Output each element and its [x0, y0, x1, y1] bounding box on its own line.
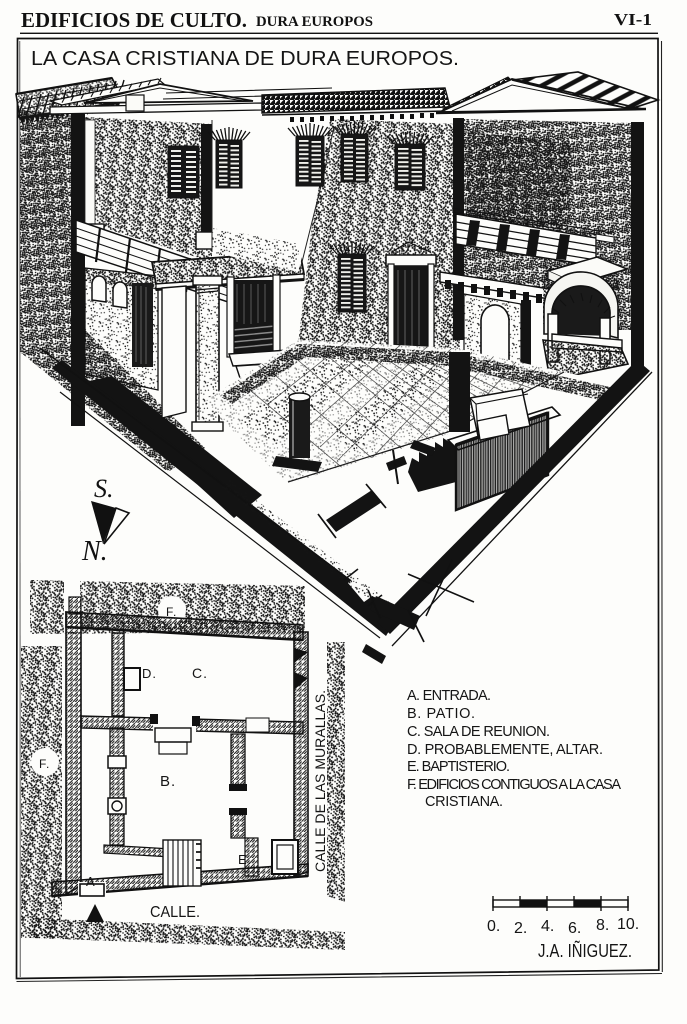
svg-text:8.: 8.: [596, 917, 609, 934]
svg-text:6.: 6.: [568, 920, 581, 937]
svg-text:CALLE.: CALLE.: [150, 904, 200, 921]
svg-text:D.: D.: [142, 666, 157, 681]
svg-text:N.: N.: [81, 536, 108, 567]
svg-text:S.: S.: [94, 474, 114, 503]
svg-text:A. ENTRADA.: A. ENTRADA.: [407, 688, 491, 704]
svg-text:EDIFICIOS DE CULTO.: EDIFICIOS DE CULTO.: [21, 8, 247, 32]
svg-text:B. PATIO.: B. PATIO.: [407, 706, 475, 722]
svg-text:2.: 2.: [514, 920, 527, 937]
svg-text:CRISTIANA.: CRISTIANA.: [425, 794, 503, 810]
svg-text:10.: 10.: [617, 916, 639, 933]
svg-text:C. SALA DE REUNION.: C. SALA DE REUNION.: [407, 724, 550, 740]
svg-text:J.A. IÑIGUEZ.: J.A. IÑIGUEZ.: [538, 940, 632, 961]
svg-text:0.: 0.: [487, 918, 500, 935]
svg-text:E.: E.: [238, 852, 252, 867]
svg-text:4.: 4.: [541, 918, 554, 935]
svg-text:D. PROBABLEMENTE, ALTAR.: D. PROBABLEMENTE, ALTAR.: [407, 742, 603, 758]
svg-text:B.: B.: [160, 773, 176, 790]
svg-text:LA CASA CRISTIANA DE DURA EURO: LA CASA CRISTIANA DE DURA EUROPOS.: [31, 48, 459, 70]
svg-text:E. BAPTISTERIO.: E. BAPTISTERIO.: [407, 759, 510, 775]
svg-text:C.: C.: [192, 665, 208, 681]
svg-text:DURA EUROPOS: DURA EUROPOS: [256, 14, 373, 30]
svg-text:A: A: [86, 874, 96, 889]
svg-text:F. EDIFICIOS CONTIGUOS A LA CA: F. EDIFICIOS CONTIGUOS A LA CASA: [407, 777, 621, 793]
svg-text:F.: F.: [39, 757, 50, 771]
svg-text:CALLE DE LAS MURALLAS.: CALLE DE LAS MURALLAS.: [313, 690, 328, 872]
svg-text:VI-1: VI-1: [614, 10, 652, 29]
